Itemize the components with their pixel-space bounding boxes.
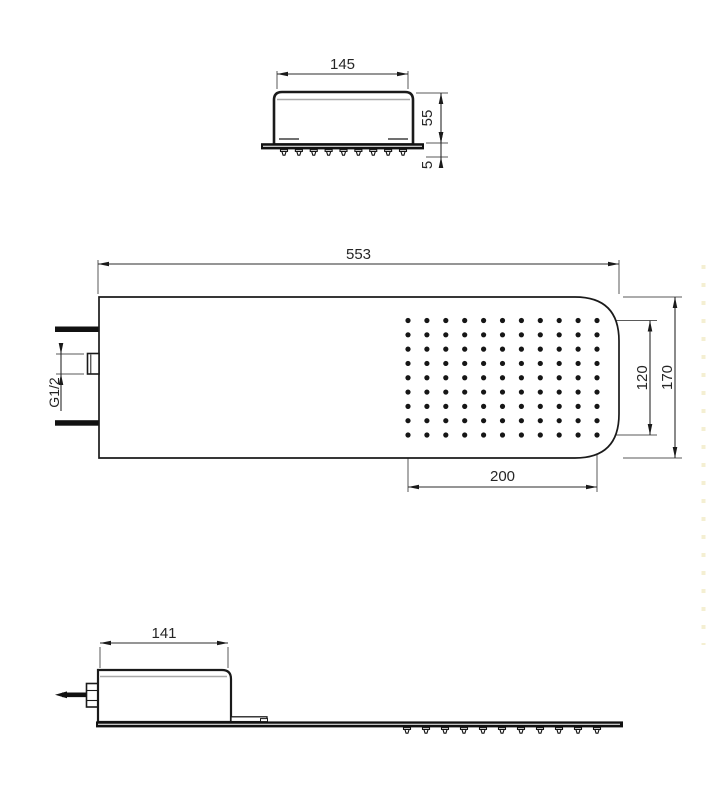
arrowhead (608, 262, 619, 267)
spray-hole (500, 318, 505, 323)
dim-label-thread: G1/2 (46, 377, 62, 408)
nozzle-tip (371, 151, 375, 155)
spray-hole (519, 432, 524, 437)
spray-hole (594, 318, 599, 323)
spray-hole (557, 404, 562, 409)
spray-hole (538, 432, 543, 437)
spray-hole (576, 404, 581, 409)
spray-hole (443, 361, 448, 366)
spray-hole (576, 318, 581, 323)
arrowhead (98, 262, 109, 267)
arrowhead (586, 485, 597, 490)
arrowhead (100, 641, 111, 646)
spray-hole (424, 332, 429, 337)
spray-hole (462, 332, 467, 337)
spray-hole (594, 432, 599, 437)
spray-hole (500, 375, 505, 380)
spray-hole (538, 347, 543, 352)
nozzle-tip (312, 151, 316, 155)
spray-hole (462, 432, 467, 437)
nozzle-tip (356, 151, 360, 155)
spray-hole (424, 418, 429, 423)
nozzle-tip (401, 151, 405, 155)
spray-hole (594, 389, 599, 394)
spray-hole (594, 332, 599, 337)
spray-hole (405, 318, 410, 323)
spray-hole (462, 389, 467, 394)
spray-hole (538, 404, 543, 409)
spray-hole (424, 347, 429, 352)
spray-hole (443, 375, 448, 380)
spray-hole (557, 432, 562, 437)
arrowhead (277, 72, 288, 77)
spray-hole (519, 361, 524, 366)
mounting-stud (55, 420, 99, 426)
spray-hole (557, 347, 562, 352)
spray-hole (519, 375, 524, 380)
spray-hole (538, 332, 543, 337)
arrowhead (217, 641, 228, 646)
spray-hole (443, 347, 448, 352)
spray-hole (557, 418, 562, 423)
spray-hole (519, 318, 524, 323)
mounting-stud (55, 327, 99, 333)
spray-hole (424, 404, 429, 409)
spray-hole (481, 404, 486, 409)
dim-label-length: 553 (346, 246, 371, 263)
spray-hole (519, 347, 524, 352)
spray-hole (576, 375, 581, 380)
arrowhead (673, 297, 678, 308)
nozzle-tip (538, 729, 542, 733)
spray-hole (462, 404, 467, 409)
arrowhead (648, 321, 653, 332)
spray-hole (405, 375, 410, 380)
nozzle-tip (519, 729, 523, 733)
nozzle-tip (557, 729, 561, 733)
spray-hole (500, 361, 505, 366)
spray-hole (576, 332, 581, 337)
spray-hole (443, 404, 448, 409)
nozzle-tip (424, 729, 428, 733)
spray-hole (519, 389, 524, 394)
spray-hole (576, 389, 581, 394)
spray-hole (519, 332, 524, 337)
spray-hole (594, 347, 599, 352)
spray-hole (576, 432, 581, 437)
spray-hole (443, 389, 448, 394)
spray-hole (405, 432, 410, 437)
pipe-nut (87, 684, 99, 708)
spray-hole (424, 361, 429, 366)
nozzle-tip (462, 729, 466, 733)
spray-hole (481, 332, 486, 337)
plan-view (55, 260, 682, 492)
water-inlet-connector (88, 354, 100, 375)
nozzle-tip (327, 151, 331, 155)
dim-label-end-width: 145 (330, 56, 355, 73)
spray-hole (500, 404, 505, 409)
spray-hole (594, 361, 599, 366)
nozzle-tip (595, 729, 599, 733)
spray-hole (462, 318, 467, 323)
spray-hole (481, 432, 486, 437)
dim-label-plate-thickness: 5 (419, 161, 436, 169)
spray-hole (594, 375, 599, 380)
dim-label-end-height: 55 (419, 110, 436, 127)
nozzle-tip (341, 151, 345, 155)
spray-hole (576, 361, 581, 366)
nozzle-tip (443, 729, 447, 733)
spray-hole (481, 375, 486, 380)
technical-drawing: 145 55 5 553 120 170 200 G1/2 141 (0, 0, 709, 800)
spray-hole (500, 389, 505, 394)
spray-hole (557, 318, 562, 323)
spray-hole (405, 347, 410, 352)
spray-hole (462, 361, 467, 366)
spray-hole (557, 375, 562, 380)
spray-hole (557, 332, 562, 337)
nozzle-tip (405, 729, 409, 733)
nozzle-tip (481, 729, 485, 733)
spray-hole (500, 432, 505, 437)
spray-hole (481, 347, 486, 352)
spray-hole (424, 375, 429, 380)
spray-hole (576, 418, 581, 423)
spray-hole (405, 389, 410, 394)
nozzle-tip (386, 151, 390, 155)
spray-hole (443, 332, 448, 337)
lip-notch (261, 719, 268, 722)
spray-hole (462, 375, 467, 380)
nozzle-tip (576, 729, 580, 733)
spray-hole (500, 418, 505, 423)
housing-outline (98, 670, 231, 722)
spray-hole (405, 332, 410, 337)
arrowhead (408, 485, 419, 490)
nozzle-tip (282, 151, 286, 155)
spray-hole (576, 347, 581, 352)
nozzle-tip (500, 729, 504, 733)
spray-hole (443, 418, 448, 423)
spray-hole (538, 389, 543, 394)
dim-label-housing-length: 141 (151, 625, 176, 642)
spray-hole (594, 418, 599, 423)
spray-hole (481, 318, 486, 323)
arrowhead (59, 343, 64, 354)
spray-hole (443, 432, 448, 437)
spray-hole (500, 332, 505, 337)
side-view (55, 641, 623, 734)
arrowhead (439, 157, 444, 168)
spray-hole (481, 361, 486, 366)
spray-hole (405, 418, 410, 423)
spray-hole (538, 361, 543, 366)
spray-hole (594, 404, 599, 409)
drawing-page: 145 55 5 553 120 170 200 G1/2 141 (0, 0, 709, 800)
arrowhead (673, 447, 678, 458)
spray-hole (481, 389, 486, 394)
arrowhead (648, 424, 653, 435)
spray-hole (519, 404, 524, 409)
spray-hole (405, 404, 410, 409)
spray-hole (538, 318, 543, 323)
dim-label-body-height: 170 (659, 365, 676, 390)
spray-hole (443, 318, 448, 323)
spray-hole (405, 361, 410, 366)
arrowhead (397, 72, 408, 77)
spray-hole (462, 347, 467, 352)
spray-hole (424, 318, 429, 323)
spray-hole (538, 418, 543, 423)
dim-label-grid-height: 120 (634, 365, 651, 390)
arrowhead (439, 132, 444, 143)
spray-hole (500, 347, 505, 352)
spray-hole (538, 375, 543, 380)
dim-label-grid-width: 200 (490, 468, 515, 485)
nozzle-tip (297, 151, 301, 155)
spray-hole (462, 418, 467, 423)
arrowhead (439, 93, 444, 104)
spray-hole (424, 432, 429, 437)
spray-hole (424, 389, 429, 394)
spray-hole (557, 361, 562, 366)
spray-hole (519, 418, 524, 423)
spray-hole (481, 418, 486, 423)
spray-hole (557, 389, 562, 394)
